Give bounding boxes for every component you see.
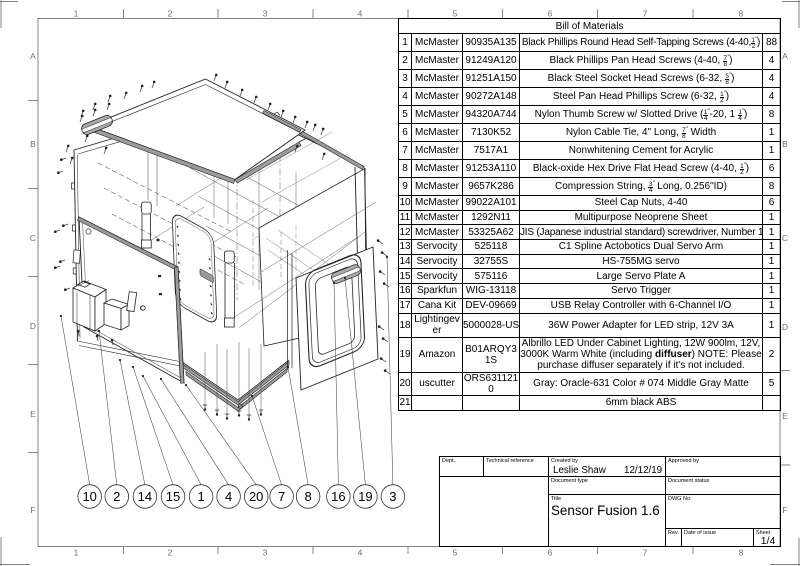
svg-text:6: 6	[548, 548, 553, 558]
svg-text:6: 6	[548, 9, 553, 19]
svg-text:1: 1	[74, 548, 79, 558]
svg-text:1: 1	[197, 489, 204, 504]
svg-text:A: A	[782, 51, 788, 61]
svg-text:C: C	[782, 233, 788, 243]
svg-text:3: 3	[263, 9, 268, 19]
svg-text:4: 4	[358, 9, 363, 19]
svg-text:7: 7	[643, 548, 648, 558]
svg-text:4: 4	[358, 548, 363, 558]
svg-text:4: 4	[225, 489, 232, 504]
svg-text:E: E	[782, 411, 788, 421]
svg-text:C: C	[30, 233, 36, 243]
svg-text:A: A	[30, 51, 36, 61]
svg-text:2: 2	[168, 548, 173, 558]
svg-text:7: 7	[278, 489, 285, 504]
svg-text:15: 15	[166, 489, 180, 504]
svg-text:D: D	[782, 322, 788, 332]
svg-text:3: 3	[389, 489, 396, 504]
svg-text:8: 8	[304, 489, 311, 504]
svg-text:D: D	[30, 321, 36, 331]
svg-text:E: E	[30, 409, 36, 419]
svg-text:F: F	[782, 505, 787, 515]
svg-text:F: F	[30, 505, 35, 515]
svg-text:16: 16	[331, 489, 345, 504]
svg-text:20: 20	[249, 489, 263, 504]
svg-text:1: 1	[74, 9, 79, 19]
svg-text:19: 19	[358, 489, 372, 504]
svg-text:5: 5	[453, 9, 458, 19]
svg-text:2: 2	[113, 489, 120, 504]
svg-text:10: 10	[82, 489, 96, 504]
svg-text:3: 3	[263, 548, 268, 558]
svg-text:B: B	[782, 139, 788, 149]
svg-text:2: 2	[168, 9, 173, 19]
svg-text:14: 14	[138, 489, 152, 504]
svg-text:5: 5	[453, 548, 458, 558]
svg-text:8: 8	[739, 548, 744, 558]
svg-text:7: 7	[643, 9, 648, 19]
svg-text:B: B	[30, 139, 36, 149]
svg-text:8: 8	[739, 9, 744, 19]
